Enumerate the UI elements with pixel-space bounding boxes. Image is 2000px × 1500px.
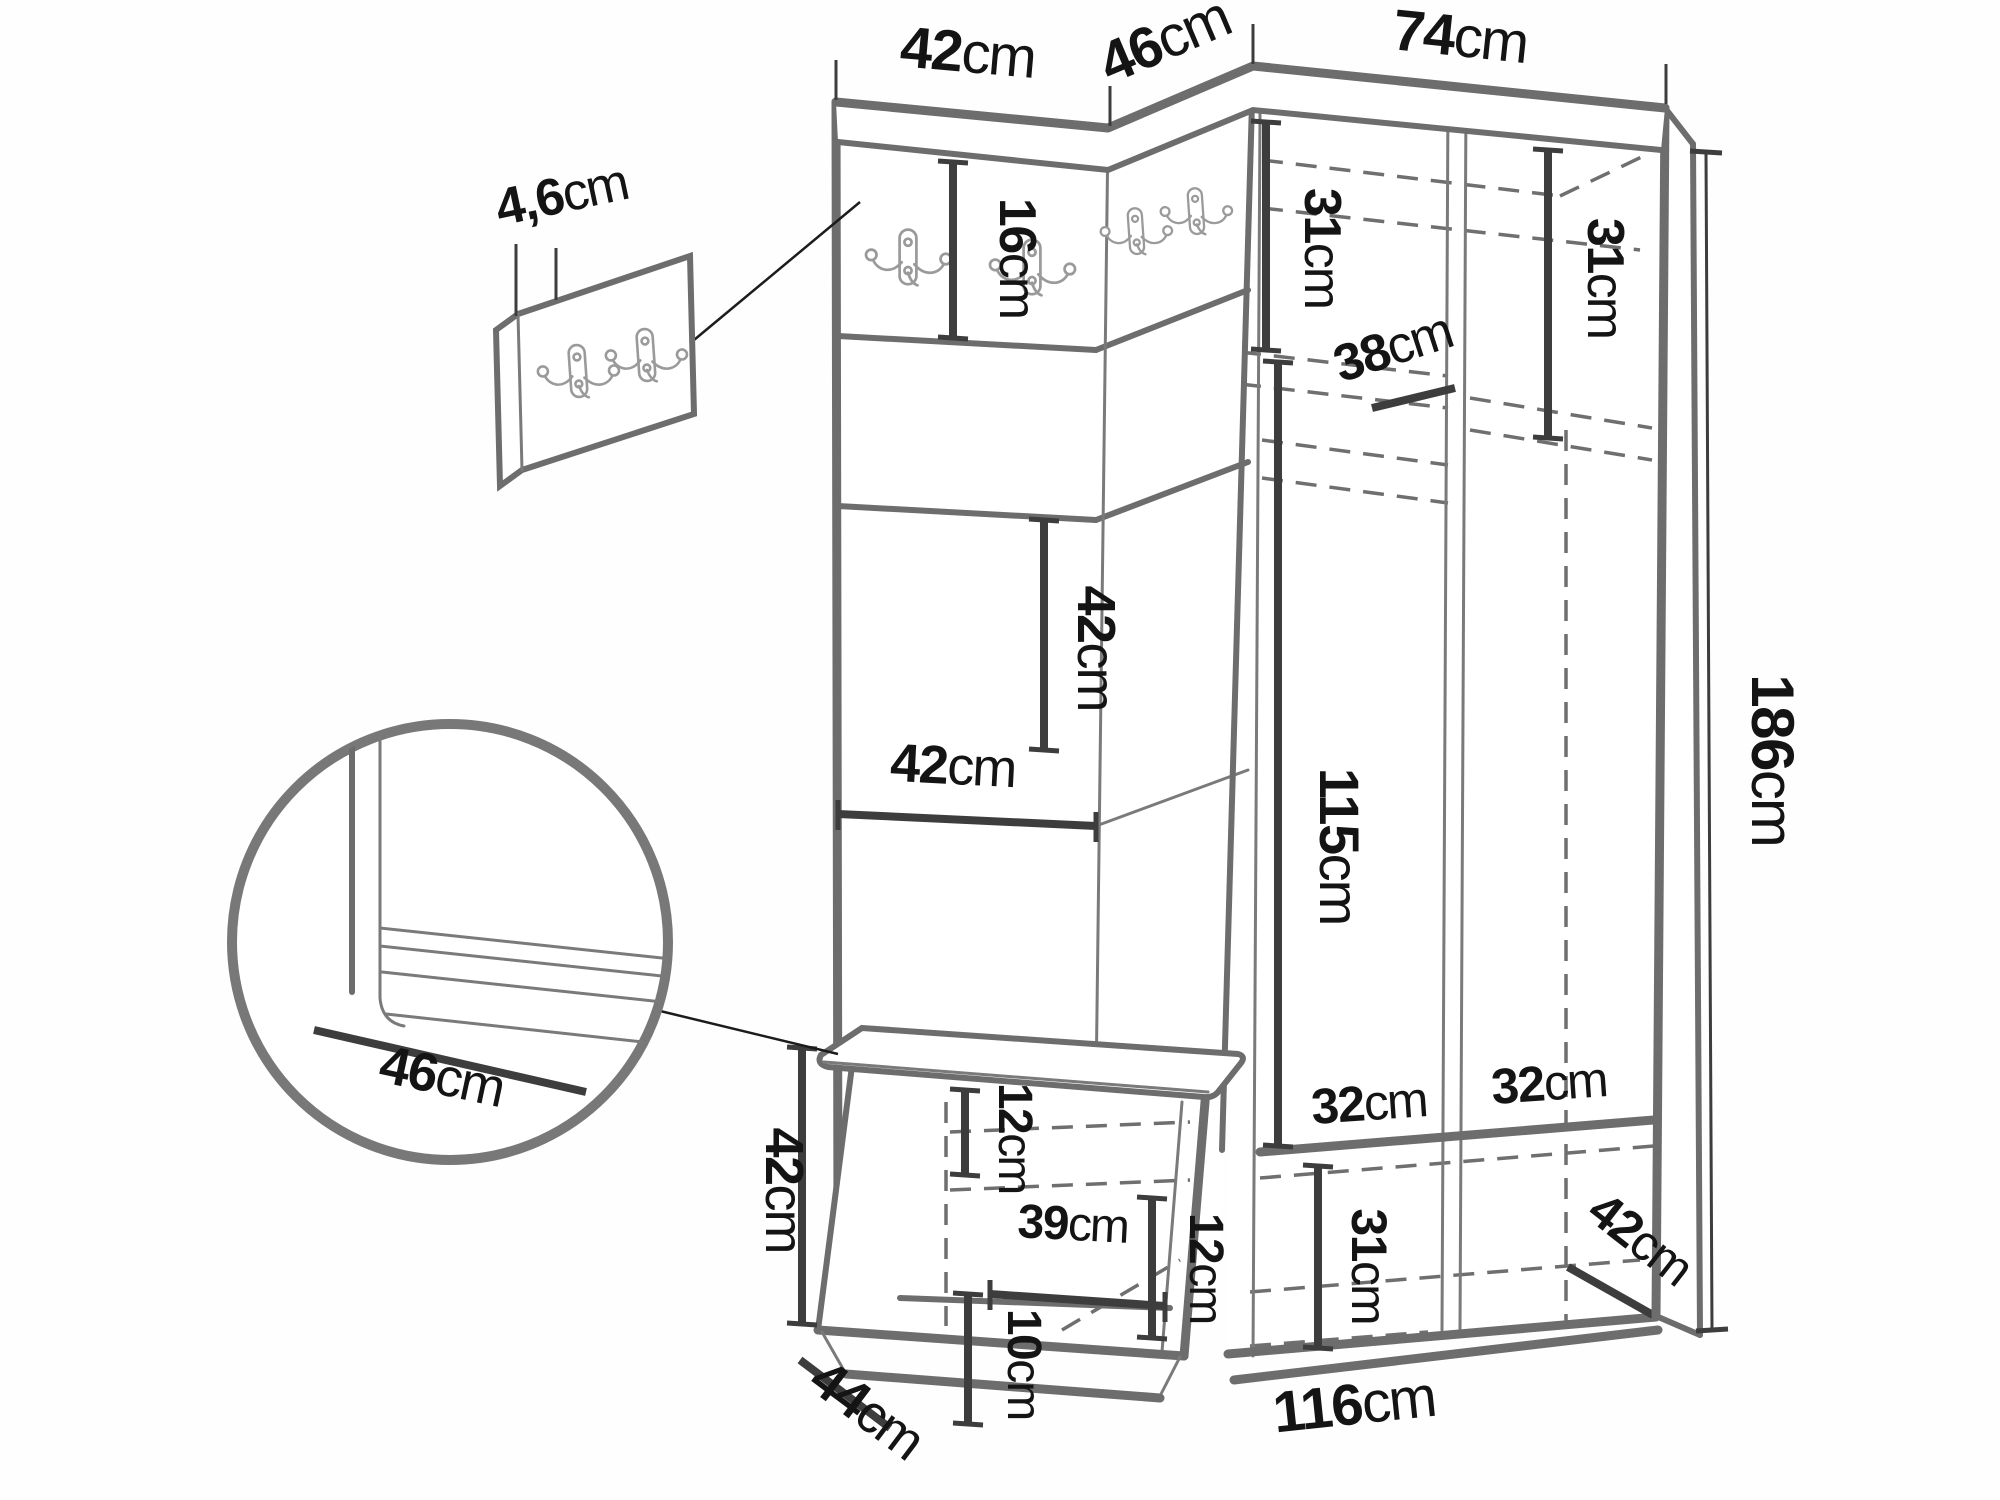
dim-wardrobe-width-top: 74cm	[1390, 0, 1531, 76]
bench-corner-detail	[232, 700, 838, 1160]
circle-leader-line	[656, 1010, 838, 1054]
dim-shoe-shelf-right-width: 32cm	[1489, 1051, 1608, 1115]
dim-panel-square-height: 42cm	[1066, 585, 1126, 710]
dim-hook-strip-height: 16cm	[988, 198, 1046, 318]
dim-bench-top-clearance: 12cm	[988, 1083, 1041, 1193]
dim-bench-height: 42cm	[754, 1127, 814, 1252]
hook-panel-detail	[496, 202, 860, 486]
dim-bench-right-clearance: 12cm	[1179, 1213, 1232, 1323]
dim-shoe-compartment-height: 31cm	[1341, 1208, 1397, 1323]
furniture-dimension-diagram: 42cm 46cm 74cm 16cm 31cm 31cm 38cm 42cm …	[0, 0, 2000, 1500]
dim-bench-inner-width: 39cm	[1016, 1195, 1129, 1254]
dim-total-height: 186cm	[1739, 674, 1806, 846]
dim-hanging-space-height: 115cm	[1308, 768, 1371, 925]
dim-bench-depth: 44cm	[799, 1348, 935, 1471]
total-height-dim-line	[1706, 152, 1712, 1330]
dim-panel-width-top: 42cm	[898, 14, 1038, 91]
dim-hook-panel-thickness: 4,6cm	[490, 153, 632, 237]
dim-panel-square-width: 42cm	[889, 733, 1017, 799]
dim-bench-bottom-clearance: 10cm	[997, 1309, 1050, 1419]
dim-top-shelf-right-height: 31cm	[1576, 218, 1634, 338]
dim-top-shelf-left-height: 31cm	[1293, 188, 1351, 308]
dim-shoe-shelf-left-width: 32cm	[1309, 1071, 1428, 1135]
